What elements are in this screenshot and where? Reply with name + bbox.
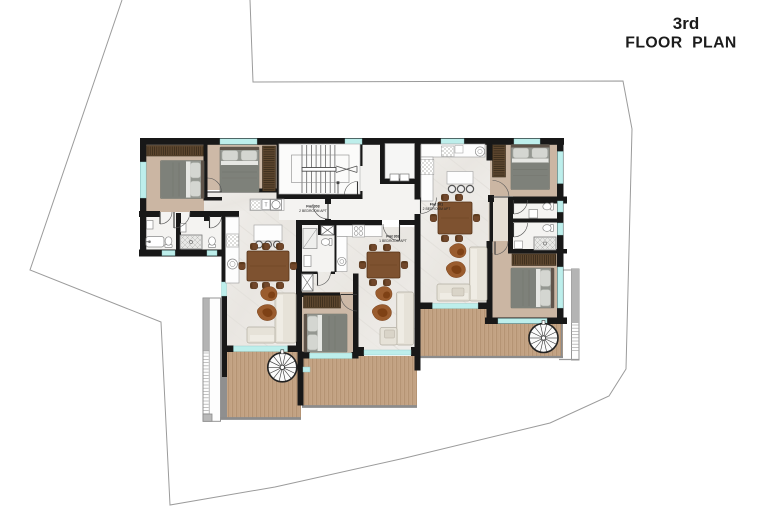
svg-text:Flat 302: Flat 302 xyxy=(386,235,399,239)
svg-text:Flat 303: Flat 303 xyxy=(306,205,319,209)
svg-text:Flat 301: Flat 301 xyxy=(430,203,443,207)
svg-text:3rd: 3rd xyxy=(673,14,699,33)
svg-text:FLOOR PLAN: FLOOR PLAN xyxy=(625,35,736,52)
svg-text:2 BEDROOM APT: 2 BEDROOM APT xyxy=(299,209,327,213)
svg-text:T: T xyxy=(264,203,267,209)
svg-text:2 BEDROOM APT: 2 BEDROOM APT xyxy=(423,207,451,211)
svg-text:1 BEDROOM APT: 1 BEDROOM APT xyxy=(379,239,407,243)
